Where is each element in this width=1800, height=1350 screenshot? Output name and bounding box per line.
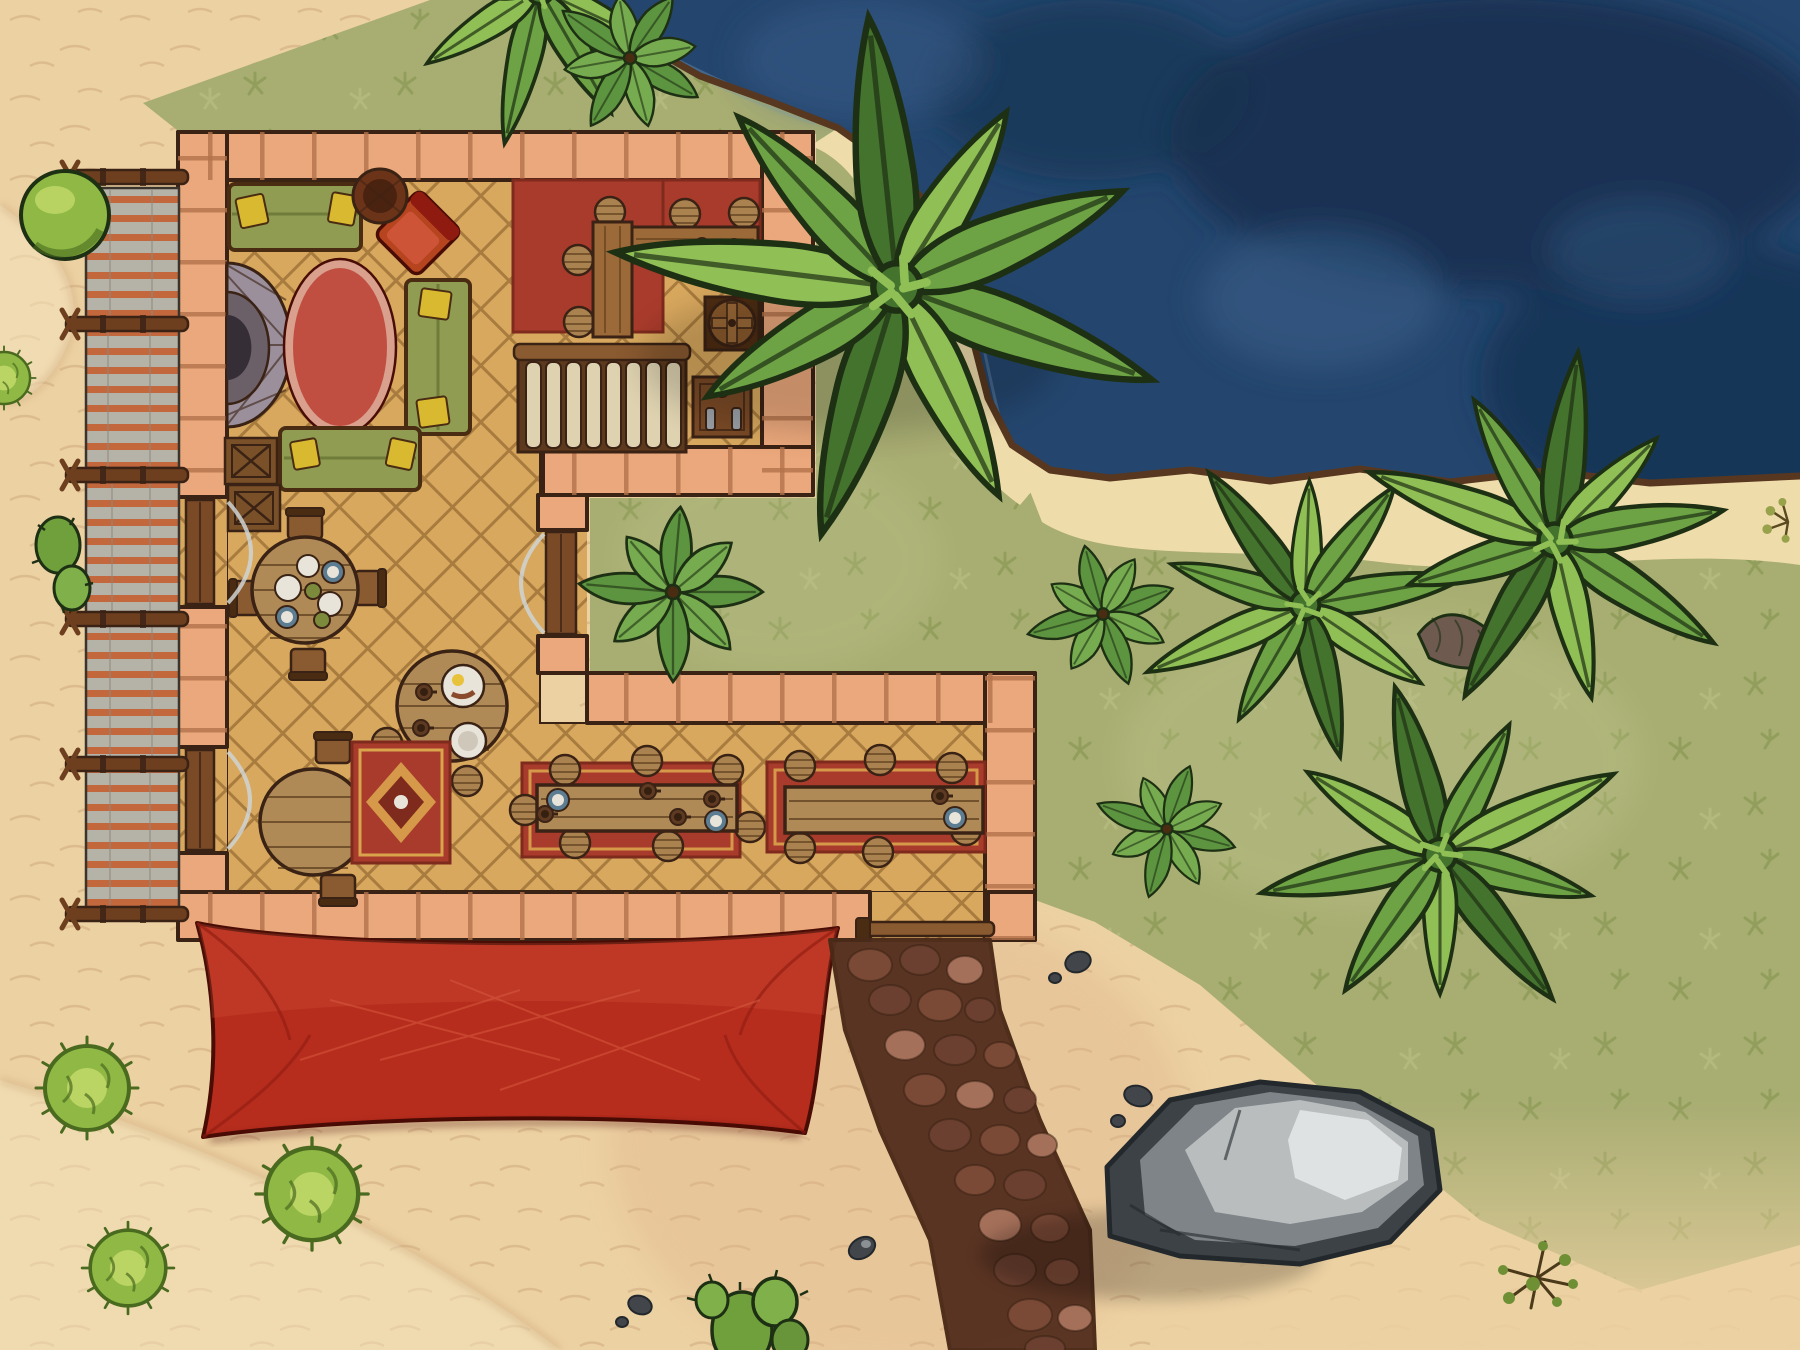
crate bbox=[228, 485, 280, 531]
battlemap: ) bbox=[0, 0, 1800, 1350]
round-side-table bbox=[353, 169, 407, 223]
crate bbox=[225, 438, 277, 484]
bush-smooth bbox=[21, 171, 109, 259]
ornate-rug bbox=[352, 742, 450, 863]
couch-right bbox=[406, 280, 470, 434]
oval-rug bbox=[284, 259, 396, 435]
couch-bottom bbox=[280, 428, 420, 490]
feast-table-2 bbox=[767, 745, 985, 867]
red-awning bbox=[197, 923, 838, 1140]
battlemap-stage: ) bbox=[0, 0, 1800, 1350]
feast-table-1 bbox=[510, 746, 765, 861]
couch-top bbox=[229, 184, 361, 250]
door-threshold bbox=[856, 918, 994, 940]
